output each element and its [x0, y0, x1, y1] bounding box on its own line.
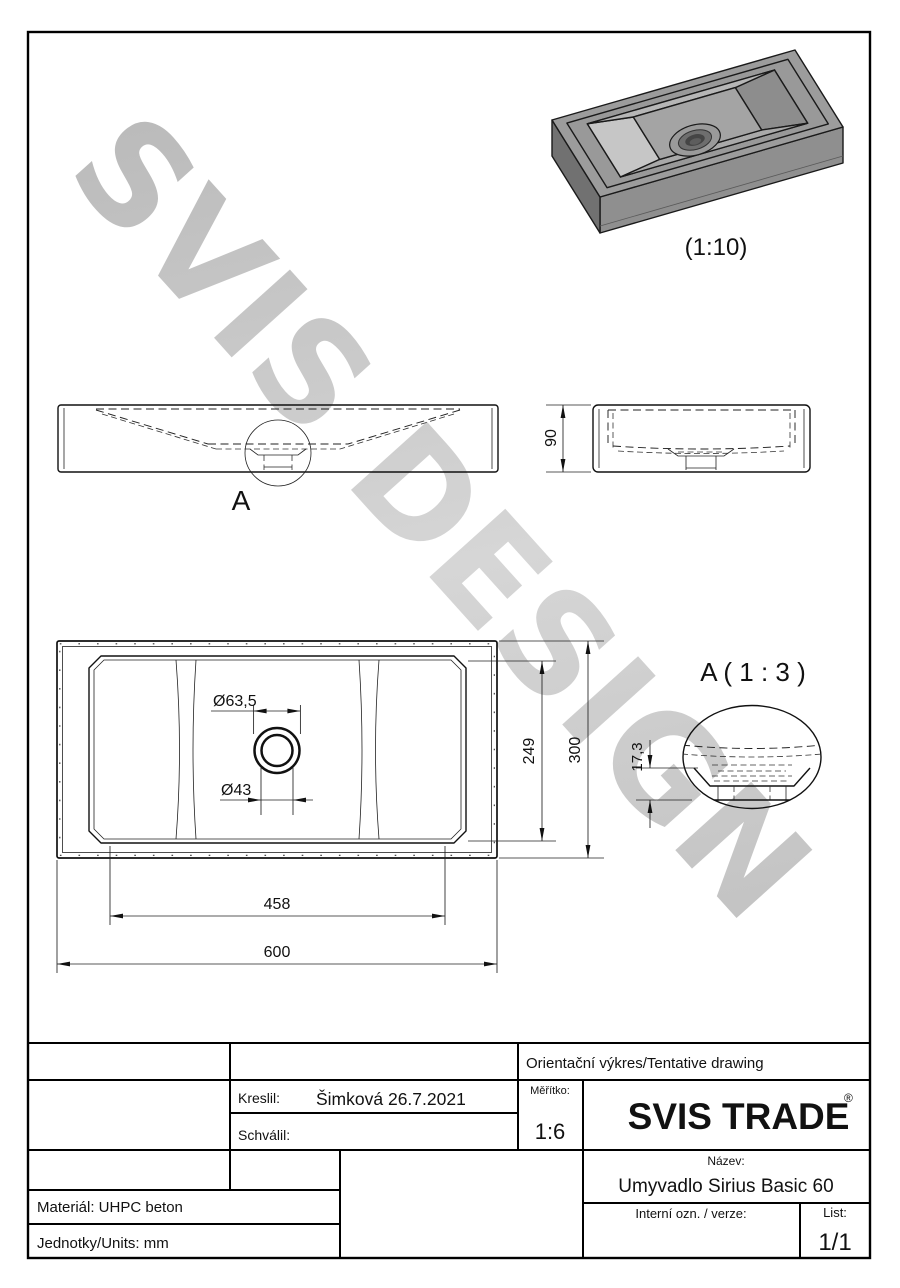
detail-view: A ( 1 : 3 ): [629, 657, 822, 828]
logo-trade: TRADE: [722, 1096, 849, 1137]
dim-458: 458: [264, 896, 291, 913]
iso-scale-label: (1:10): [685, 234, 748, 261]
list-label: List:: [823, 1205, 847, 1220]
meritko-label: Měřítko:: [530, 1085, 570, 1097]
dim-drain-inner: Ø43: [221, 782, 251, 799]
list-value: 1/1: [818, 1229, 851, 1256]
material-label: Materiál: UHPC beton: [37, 1199, 183, 1216]
dim-90: 90: [543, 429, 560, 447]
dim-17-3: 17,3: [629, 742, 646, 771]
nazev-value: Umyvadlo Sirius Basic 60: [618, 1176, 833, 1197]
drawing-canvas: (1:10) A: [0, 0, 900, 1288]
dim-600: 600: [264, 944, 291, 961]
kreslil-value: Šimková 26.7.2021: [316, 1088, 466, 1109]
dim-249: 249: [521, 738, 538, 765]
logo-registered-mark: ®: [844, 1091, 853, 1105]
title-block: Orientační výkres/Tentative drawing Kres…: [28, 1043, 870, 1258]
drawing-sheet: SVIS DESIGN (1:10): [0, 0, 900, 1288]
kreslil-label: Kreslil:: [238, 1090, 280, 1106]
dim-drain-outer: Ø63,5: [213, 693, 257, 710]
logo-svis: SVIS: [628, 1096, 712, 1137]
drain-inner-circle: [262, 735, 293, 766]
interni-label: Interní ozn. / verze:: [635, 1206, 746, 1221]
meritko-value: 1:6: [535, 1119, 566, 1144]
front-view: A: [58, 405, 498, 516]
schvalil-label: Schválil:: [238, 1127, 290, 1143]
sheet-frame: [28, 32, 870, 1258]
tentative-drawing-label: Orientační výkres/Tentative drawing: [526, 1055, 764, 1072]
plan-view: Ø63,5 Ø43 249 300: [57, 641, 604, 973]
nazev-label: Název:: [707, 1154, 744, 1168]
end-view: 90: [543, 405, 810, 472]
detail-title: A ( 1 : 3 ): [700, 657, 806, 687]
dim-300: 300: [567, 737, 584, 764]
detail-ref-label: A: [232, 485, 251, 516]
iso-view: (1:10): [552, 50, 843, 261]
units-label: Jednotky/Units: mm: [37, 1235, 169, 1252]
